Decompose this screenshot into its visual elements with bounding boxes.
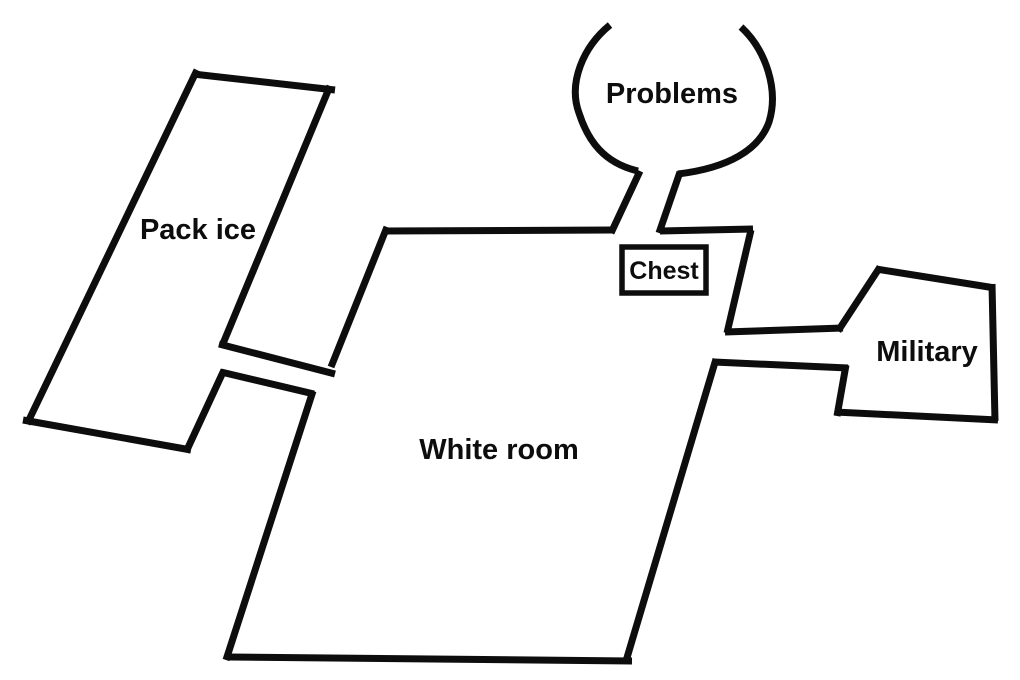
corridor-white-room-military xyxy=(714,328,848,368)
white-room-label: White room xyxy=(419,434,579,466)
map-canvas: Pack ice White room Problems xyxy=(0,0,1020,680)
white-room-wall-top-right xyxy=(660,229,753,231)
problems-label: Problems xyxy=(606,78,738,110)
corridor-pack-wall-upper xyxy=(219,344,335,374)
pack-ice-wall-right-lower xyxy=(186,370,224,452)
white-room-wall-right-upper xyxy=(727,230,751,333)
white-room-wall-left-lower xyxy=(226,391,313,660)
white-room-wall-top-left xyxy=(383,230,613,231)
pack-ice-wall-top xyxy=(193,74,335,90)
military-label: Military xyxy=(876,336,978,368)
corridor-white-room-problems xyxy=(611,171,680,233)
corridor-problems-wall-left xyxy=(611,171,640,233)
corridor-pack-ice-white-room xyxy=(219,344,335,394)
problems-room: Problems xyxy=(575,25,772,174)
military-wall-left-lower xyxy=(837,365,846,416)
military-wall-top xyxy=(876,269,995,288)
pack-ice-wall-left xyxy=(27,70,197,424)
corridor-military-wall-bottom xyxy=(714,362,848,368)
white-room-wall-left-upper xyxy=(331,227,387,367)
military-wall-right xyxy=(992,284,995,421)
corridor-military-wall-top xyxy=(725,328,843,332)
chest-marker: Chest xyxy=(622,247,706,293)
white-room-wall-bottom xyxy=(229,657,632,661)
corridor-problems-wall-right xyxy=(659,172,680,233)
military-wall-left-upper xyxy=(838,267,880,331)
room-map-drawing: Pack ice White room Problems xyxy=(0,0,1020,680)
military-wall-bottom xyxy=(835,412,998,420)
white-room-wall-right-lower xyxy=(626,359,716,661)
military-room: Military xyxy=(835,267,998,421)
corridor-pack-wall-lower xyxy=(221,372,314,394)
chest-label: Chest xyxy=(629,257,699,285)
pack-ice-room: Pack ice xyxy=(23,70,335,452)
pack-ice-label: Pack ice xyxy=(140,214,256,246)
pack-ice-wall-bottom xyxy=(23,420,191,450)
